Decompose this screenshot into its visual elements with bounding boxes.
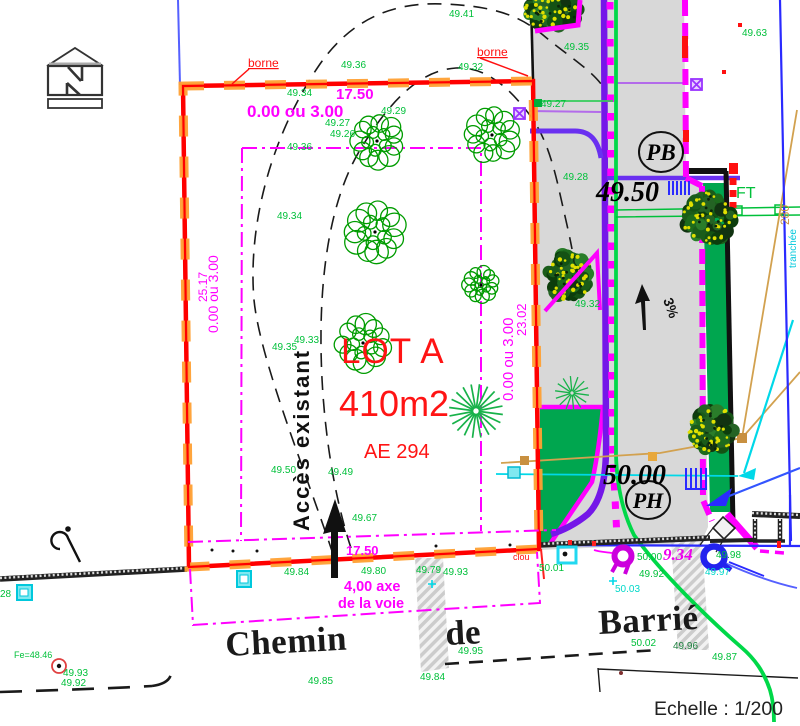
svg-text:49.27: 49.27 [541, 99, 566, 110]
svg-text:AE 294: AE 294 [364, 441, 430, 463]
svg-text:49.50: 49.50 [271, 465, 296, 476]
svg-text:Accès existant: Accès existant [289, 349, 314, 531]
svg-text:Fe=48.46: Fe=48.46 [14, 650, 52, 660]
svg-text:49.79: 49.79 [416, 565, 441, 576]
svg-text:borne: borne [477, 45, 508, 59]
svg-text:49.63: 49.63 [742, 28, 767, 39]
svg-text:49.87: 49.87 [712, 652, 737, 663]
svg-text:FT: FT [736, 185, 756, 202]
svg-text:49.93: 49.93 [443, 567, 468, 578]
svg-text:49.84: 49.84 [284, 567, 309, 578]
svg-text:50.02: 50.02 [631, 638, 656, 649]
svg-text:49.34: 49.34 [277, 211, 302, 222]
svg-text:49.50: 49.50 [595, 177, 659, 208]
svg-text:49.41: 49.41 [449, 9, 474, 20]
svg-text:49.27: 49.27 [325, 118, 350, 129]
svg-text:49.36: 49.36 [341, 60, 366, 71]
svg-text:Barrié: Barrié [597, 598, 699, 642]
svg-text:49.34: 49.34 [287, 88, 312, 99]
svg-text:280: 280 [778, 205, 792, 225]
svg-text:23.02: 23.02 [514, 303, 529, 336]
svg-text:50.03: 50.03 [615, 584, 640, 595]
svg-text:17.50: 17.50 [336, 86, 374, 103]
svg-text:PH: PH [632, 488, 664, 513]
svg-text:49.98: 49.98 [716, 550, 741, 561]
svg-text:50.01: 50.01 [539, 563, 564, 574]
svg-text:49.80: 49.80 [361, 566, 386, 577]
svg-text:49.97: 49.97 [705, 567, 730, 578]
svg-text:49.35: 49.35 [564, 42, 589, 53]
svg-text:borne: borne [248, 56, 279, 70]
svg-text:49.28: 49.28 [563, 172, 588, 183]
svg-text:28: 28 [0, 589, 12, 600]
svg-text:49.96: 49.96 [673, 641, 698, 652]
svg-text:clou: clou [513, 552, 530, 562]
svg-text:17.50: 17.50 [346, 543, 379, 558]
svg-text:Chemin: Chemin [224, 619, 347, 664]
svg-text:49.26: 49.26 [330, 129, 355, 140]
svg-text:50.00: 50.00 [637, 552, 662, 563]
svg-text:4,00 axe: 4,00 axe [344, 579, 400, 595]
svg-text:49.36: 49.36 [287, 142, 312, 153]
svg-text:410m2: 410m2 [339, 383, 449, 424]
svg-text:25.17: 25.17 [196, 272, 210, 302]
svg-text:49.67: 49.67 [352, 513, 377, 524]
svg-text:de la voie: de la voie [338, 596, 404, 612]
svg-text:LOT A: LOT A [341, 332, 445, 371]
svg-text:tranchée: tranchée [788, 229, 799, 268]
svg-text:49.95: 49.95 [458, 646, 483, 657]
svg-text:49.92: 49.92 [61, 678, 86, 689]
svg-text:49.84: 49.84 [420, 672, 445, 683]
svg-text:50.00: 50.00 [603, 460, 666, 491]
svg-text:Echelle : 1/200: Echelle : 1/200 [654, 698, 783, 720]
svg-text:49.29: 49.29 [381, 106, 406, 117]
svg-text:9.34: 9.34 [663, 545, 693, 564]
svg-text:49.92: 49.92 [639, 569, 664, 580]
svg-text:49.32: 49.32 [575, 299, 600, 310]
svg-text:49.33: 49.33 [294, 335, 319, 346]
svg-text:49.85: 49.85 [308, 676, 333, 687]
svg-text:PB: PB [645, 140, 675, 165]
svg-text:49.49: 49.49 [328, 467, 353, 478]
svg-text:49.32: 49.32 [458, 62, 483, 73]
